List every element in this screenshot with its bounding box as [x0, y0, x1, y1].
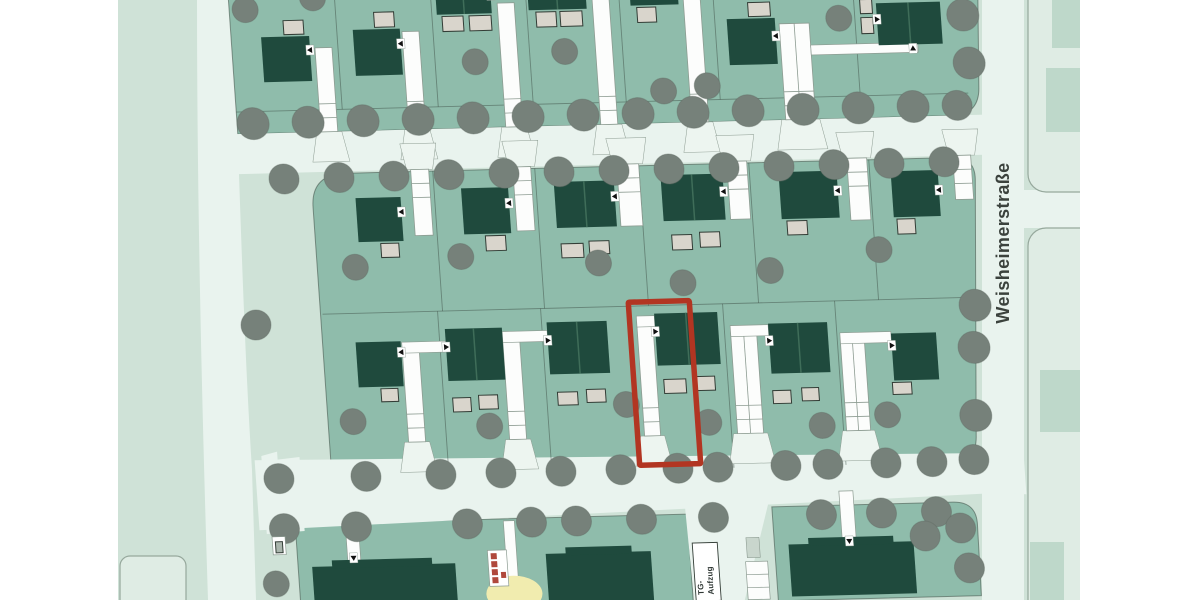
neighbor-building: [1040, 370, 1080, 432]
house-roof: [727, 18, 778, 65]
house-roof: [891, 332, 939, 380]
garage: [861, 17, 874, 33]
stair-step: [501, 572, 506, 578]
stair-step: [491, 561, 497, 567]
map-margin: [0, 0, 118, 600]
garage: [557, 392, 578, 406]
garage: [748, 2, 771, 17]
garage: [453, 398, 472, 412]
garage: [485, 235, 506, 251]
driveway-flare: [728, 433, 776, 464]
tg-vent-box: [746, 537, 760, 557]
apartment-building-roof: [312, 563, 458, 600]
garage: [283, 20, 304, 35]
neighbor-building: [1046, 68, 1080, 132]
garage: [892, 382, 912, 394]
footpath: [730, 325, 769, 337]
neighbor-building: [1030, 542, 1064, 600]
driveway-flare: [400, 143, 438, 170]
stair-step: [492, 577, 498, 583]
footpath: [840, 331, 892, 343]
garage: [860, 0, 873, 14]
garage: [773, 390, 792, 403]
garage: [897, 219, 916, 234]
street-name-label: Weisheimerstraße: [993, 162, 1013, 323]
garage: [560, 11, 583, 27]
house-roof: [356, 341, 404, 387]
apartment-building-roof: [546, 551, 655, 600]
garage: [672, 234, 693, 250]
footpath: [402, 341, 447, 353]
house-roof: [461, 187, 511, 234]
estate-group: TG-Aufzug: [197, 0, 1033, 600]
driveway: [847, 158, 871, 221]
parking-divider: [849, 186, 869, 187]
stair-step: [491, 553, 497, 559]
tg-entrance-hatch: [275, 542, 283, 553]
house-roof: [526, 0, 587, 10]
garage: [536, 12, 557, 28]
garage: [664, 379, 687, 394]
garage: [787, 220, 808, 235]
parking-divider: [729, 189, 749, 190]
garage: [478, 395, 498, 409]
site-plan-map: TG-AufzugWeisheimerstraße: [0, 0, 1200, 600]
garage: [442, 16, 464, 32]
garage: [700, 232, 721, 248]
garage: [802, 387, 820, 400]
map-margin: [1080, 0, 1200, 600]
garage: [381, 388, 399, 401]
apartment-building-roof: [788, 541, 917, 596]
garage: [469, 15, 492, 31]
house-roof: [355, 197, 403, 242]
tree-icon: [241, 310, 271, 340]
garage: [374, 12, 395, 28]
footpath: [636, 316, 655, 327]
house-roof: [353, 29, 403, 76]
tg-parking: [746, 561, 771, 600]
parking-divider: [619, 192, 641, 193]
stair-step: [492, 569, 498, 575]
garage: [586, 389, 606, 402]
neighbor-building: [1052, 0, 1080, 48]
house-roof: [261, 36, 312, 82]
parking-divider: [848, 172, 868, 173]
garage: [561, 243, 584, 258]
tg-aufzug-label: TG-: [696, 580, 706, 595]
apartment-building-roof: [565, 546, 632, 556]
house-roof: [891, 170, 941, 217]
garage: [637, 7, 657, 22]
cross-street: [1022, 190, 1080, 228]
site-plan-page: TG-AufzugWeisheimerstraße: [0, 0, 1200, 600]
footpath: [502, 330, 548, 342]
garage: [381, 243, 400, 257]
neighbor-parcel: [120, 556, 186, 600]
